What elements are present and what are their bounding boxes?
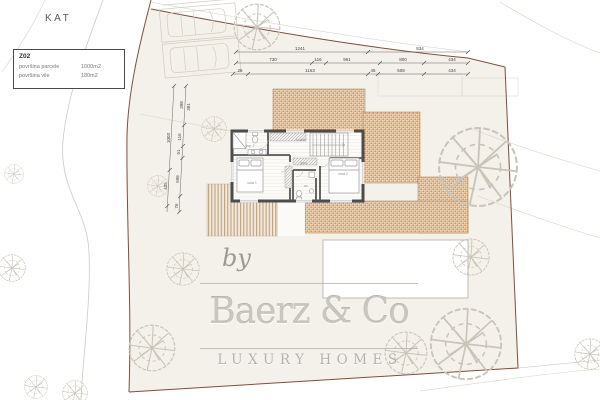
svg-text:434: 434 bbox=[448, 68, 456, 73]
svg-text:596: 596 bbox=[175, 175, 180, 183]
info-row-villa: površina vile 180m2 bbox=[19, 72, 124, 81]
svg-text:1241: 1241 bbox=[295, 46, 306, 51]
svg-text:soba 1: soba 1 bbox=[247, 181, 257, 185]
house-plan: kup. 2soba 1hodnikgard.wcsoba 2 bbox=[230, 129, 364, 202]
svg-text:gard.: gard. bbox=[300, 161, 307, 165]
svg-text:434: 434 bbox=[448, 57, 456, 62]
svg-text:51: 51 bbox=[176, 149, 181, 155]
pool bbox=[323, 240, 468, 298]
page-title: KAT bbox=[45, 13, 71, 24]
svg-text:508: 508 bbox=[397, 68, 405, 73]
tree-icon bbox=[5, 165, 24, 184]
svg-text:76: 76 bbox=[174, 203, 179, 209]
tree-icon bbox=[575, 339, 600, 369]
svg-text:116: 116 bbox=[314, 57, 322, 62]
svg-text:800: 800 bbox=[399, 57, 407, 62]
svg-text:soba 2: soba 2 bbox=[338, 172, 348, 176]
svg-text:381: 381 bbox=[186, 103, 191, 111]
site-plan-page: kup. 2soba 1hodnikgard.wcsoba 2 bbox=[0, 0, 600, 400]
svg-text:kup. 2: kup. 2 bbox=[246, 144, 255, 148]
parcel-area-label: površina parcele bbox=[19, 63, 81, 72]
bed-icon bbox=[237, 158, 263, 192]
svg-text:730: 730 bbox=[269, 57, 277, 62]
villa-area-label: površina vile bbox=[19, 72, 81, 81]
svg-text:hodnik: hodnik bbox=[296, 138, 306, 142]
svg-text:834: 834 bbox=[416, 46, 424, 51]
svg-text:435: 435 bbox=[163, 182, 168, 190]
info-row-parcel: površina parcele 1000m2 bbox=[19, 63, 124, 72]
tree-icon bbox=[63, 381, 88, 400]
plan-code: Z02 bbox=[19, 53, 124, 60]
tree-icon bbox=[0, 255, 25, 282]
info-box: Z02 površina parcele 1000m2 površina vil… bbox=[13, 49, 125, 89]
svg-text:961: 961 bbox=[343, 57, 351, 62]
parcel-area-value: 1000m2 bbox=[81, 63, 101, 72]
svg-text:398: 398 bbox=[179, 101, 184, 109]
villa-area-value: 180m2 bbox=[81, 72, 98, 81]
svg-text:26: 26 bbox=[237, 68, 243, 73]
svg-text:45: 45 bbox=[370, 68, 376, 73]
svg-text:wc: wc bbox=[304, 184, 308, 188]
path-strip bbox=[278, 201, 305, 236]
svg-text:116: 116 bbox=[177, 133, 182, 141]
svg-text:1163: 1163 bbox=[305, 68, 315, 73]
tree-icon bbox=[25, 376, 48, 399]
svg-text:1003: 1003 bbox=[166, 132, 171, 143]
